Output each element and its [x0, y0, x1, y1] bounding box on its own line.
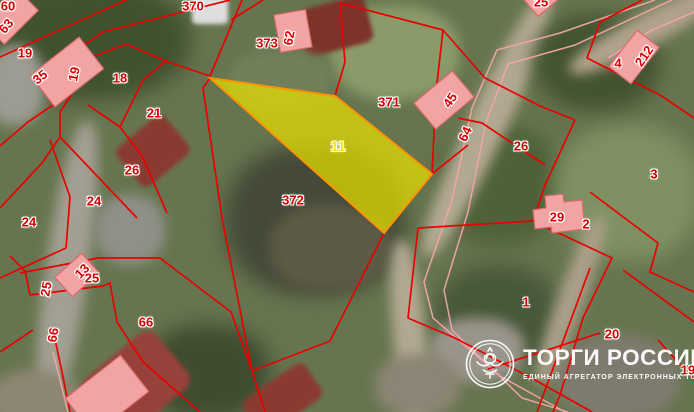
parcel-label-19: 19 [18, 47, 32, 60]
torgi-rossii-watermark: ТОРГИ РОССИИ ЕДИНЫЙ АГРЕГАТОР ЭЛЕКТРОННЫ… [464, 338, 694, 390]
parcel-label-25: 25 [38, 281, 53, 298]
parcel-label-62: 62 [281, 30, 296, 47]
eagle-emblem-icon [464, 338, 516, 390]
watermark-subtitle: ЕДИНЫЙ АГРЕГАТОР ЭЛЕКТРОННЫХ ТОРГОВ [523, 373, 694, 381]
parcel-label-370: 370 [182, 0, 204, 13]
parcel-label-29: 29 [550, 211, 564, 224]
parcel-label-373: 373 [256, 37, 278, 50]
parcel-label-371: 371 [378, 96, 400, 109]
parcel-label-1: 1 [522, 296, 529, 309]
parcel-label-2: 2 [582, 218, 589, 231]
parcel-label-60: 60 [1, 0, 15, 13]
highlighted-lot-label: 11 [331, 139, 346, 153]
parcel-label-4: 4 [614, 57, 621, 70]
parcel-label-24: 24 [87, 195, 101, 208]
cadastral-map[interactable]: 3706063193519182126242425132566663736237… [0, 0, 694, 412]
parcel-label-26: 26 [125, 164, 139, 177]
parcel-label-372: 372 [282, 194, 304, 207]
parcel-label-25: 25 [85, 272, 99, 285]
parcel-label-18: 18 [113, 72, 127, 85]
parcel-label-66: 66 [139, 316, 153, 329]
parcel-label-21: 21 [147, 107, 161, 120]
parcel-label-3: 3 [650, 168, 657, 181]
building-bottom-left [65, 355, 148, 412]
parcel-label-24: 24 [22, 216, 36, 229]
parcel-label-66: 66 [45, 327, 60, 344]
watermark-title: ТОРГИ РОССИИ [523, 347, 694, 370]
parcel-label-26: 26 [514, 140, 528, 153]
parcel-label-19: 19 [66, 66, 82, 83]
parcel-label-25: 25 [534, 0, 548, 9]
